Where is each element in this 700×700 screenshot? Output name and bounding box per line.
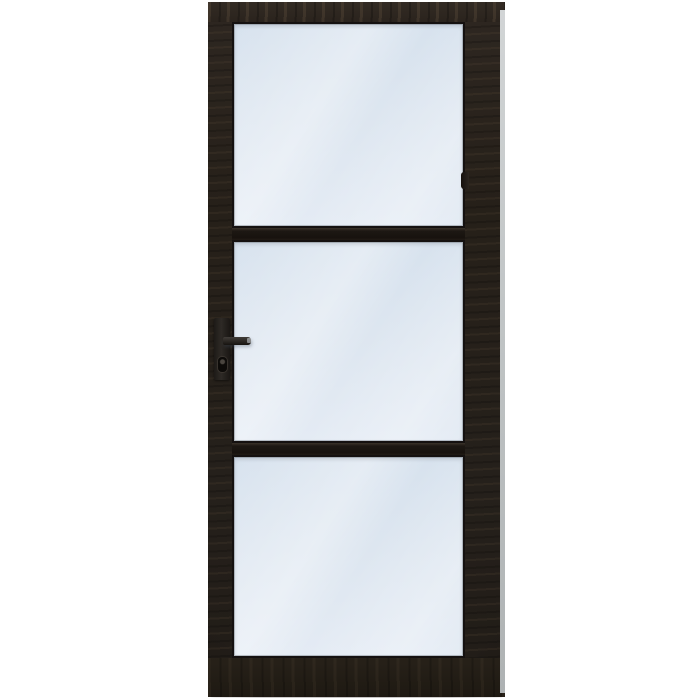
floor-shadow xyxy=(210,696,503,698)
mullion-upper xyxy=(232,228,465,240)
door-top-rail xyxy=(208,2,505,22)
product-photo-stage xyxy=(0,0,700,700)
latch-keep xyxy=(461,172,469,189)
glass-pane-bottom xyxy=(232,455,465,658)
mullion-lower xyxy=(232,443,465,455)
glazing-opening xyxy=(232,22,465,658)
keyhole xyxy=(218,357,227,372)
lever-handle xyxy=(223,337,251,345)
door-bottom-rail xyxy=(208,658,505,697)
glass-pane-top xyxy=(232,22,465,228)
door-right-edge-highlight xyxy=(500,10,505,693)
door xyxy=(208,2,505,697)
glass-pane-middle xyxy=(232,240,465,443)
